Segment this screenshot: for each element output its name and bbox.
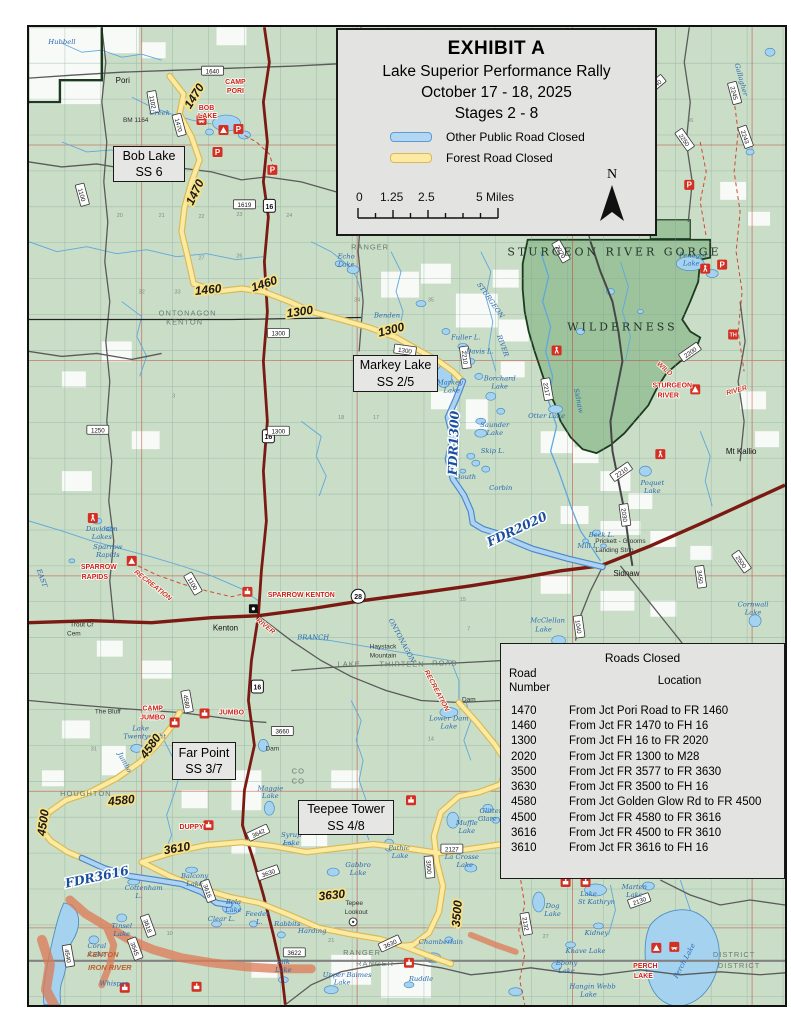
water-label: Echo — [337, 253, 355, 261]
road-location: From Jct FR 1300 to M28 — [569, 750, 784, 765]
private-land — [62, 82, 92, 104]
private-land — [62, 371, 86, 387]
private-land — [62, 471, 92, 491]
section-number: 7 — [467, 627, 470, 633]
svg-text:1300: 1300 — [271, 331, 285, 338]
water-label: Lake — [744, 609, 762, 617]
road-marker-3660: 3660 — [271, 726, 293, 735]
admin-label: RANGER — [351, 243, 389, 252]
campground-icon — [651, 943, 661, 953]
water-label: Pathic — [387, 844, 410, 852]
admin-label: CO — [292, 776, 305, 785]
highway-shield-28: 28 — [351, 589, 365, 603]
wilderness-label: WILDERNESS — [567, 320, 677, 333]
lake — [264, 801, 274, 815]
column-header-location: Location — [575, 667, 784, 696]
water-label: Lake — [579, 890, 597, 898]
private-land — [740, 391, 766, 409]
lake — [639, 466, 651, 476]
road-location: From Jct FR 3577 to FR 3630 — [569, 765, 784, 780]
water-label: Lake — [534, 626, 552, 634]
mill-icon — [404, 958, 414, 968]
road-location: From Jct FH 16 to FR 2020 — [569, 734, 784, 749]
recreation-site-label: JUMBO — [140, 714, 166, 721]
private-land — [628, 493, 652, 509]
road-number: 3630 — [501, 780, 569, 795]
road-closed-row: 3500From Jct FR 3577 to FR 3630 — [501, 765, 784, 780]
svg-text:16: 16 — [254, 685, 262, 692]
water-label: Maggie — [256, 784, 283, 792]
water-label: Fuller L. — [450, 333, 480, 341]
north-arrow: N — [597, 167, 627, 228]
road-location: From Jct Golden Glow Rd to FR 4500 — [569, 795, 784, 810]
highway-shield-16: 16 — [251, 680, 263, 693]
private-land — [755, 431, 779, 447]
recreation-site-label: CAMP — [225, 79, 246, 86]
section-number: 35 — [428, 298, 434, 304]
lake — [416, 301, 426, 307]
legend-item-forest-road: Forest Road Closed — [390, 151, 655, 165]
place-label: Trout Cr — [70, 622, 94, 629]
place-label: Lookout — [345, 909, 368, 916]
water-label: Dog — [545, 902, 560, 910]
water-label: Ruddle — [408, 975, 433, 983]
lake — [442, 328, 450, 334]
section-number: 33 — [175, 290, 181, 296]
water-label: Lake — [625, 891, 643, 899]
water-label: Coral — [87, 942, 106, 950]
road-marker-1640: 1640 — [202, 66, 224, 75]
trailhead-icon: TH — [728, 329, 738, 339]
water-label: Upper Baimes — [323, 971, 372, 979]
lake — [533, 892, 545, 912]
private-land — [331, 770, 359, 788]
mill-icon — [242, 587, 252, 597]
water-label: Whisper — [100, 980, 129, 988]
water-label: Kidney — [584, 929, 609, 937]
lake — [765, 48, 775, 56]
recreation-site-label: PORI — [227, 88, 244, 95]
stage-ss: SS 4/8 — [299, 818, 393, 834]
svg-text:3660: 3660 — [275, 729, 289, 736]
map-title-box: EXHIBIT A Lake Superior Performance Rall… — [336, 28, 657, 236]
water-label: Rabbits — [273, 920, 301, 928]
place-label: Tepee — [345, 900, 363, 907]
section-number: 36 — [687, 118, 693, 124]
route-number-label: 3500 — [449, 899, 465, 927]
place-label: Landing Strip — [595, 547, 634, 554]
north-label: N — [597, 167, 627, 183]
stage-ss: SS 6 — [114, 164, 184, 180]
hiker-icon — [700, 264, 710, 274]
svg-text:5 Miles: 5 Miles — [476, 190, 514, 204]
road-number: 3500 — [501, 765, 569, 780]
road-marker-3500: 3500 — [424, 856, 435, 879]
lake — [482, 466, 490, 472]
lake — [472, 460, 480, 466]
recreation-site-label: SPARROW KENTON — [268, 592, 335, 599]
section-number: 31 — [91, 746, 97, 752]
private-land — [541, 576, 571, 594]
svg-text:P: P — [270, 166, 276, 175]
svg-text:TH: TH — [729, 333, 736, 339]
parking-icon: P — [267, 165, 277, 175]
recreation-site-label: DUPPY — [180, 824, 204, 831]
water-label: Lake — [557, 967, 575, 975]
private-land — [142, 42, 166, 58]
mill-icon — [204, 820, 214, 830]
svg-text:1250: 1250 — [91, 427, 105, 434]
water-label: La Crosse — [444, 853, 479, 861]
private-land — [42, 770, 64, 786]
private-land — [182, 790, 208, 808]
water-label: Tinsel — [111, 922, 132, 930]
mill-icon — [170, 717, 180, 727]
road-number: 2020 — [501, 750, 569, 765]
town-label: Kenton — [213, 624, 238, 633]
mill-icon — [200, 708, 210, 718]
lake — [69, 559, 75, 563]
section-number: 10 — [167, 931, 173, 937]
recreation-site-label: JUMBO — [219, 709, 245, 716]
road-location: From Jct FR 3616 to FH 16 — [569, 841, 784, 856]
road-location: From Jct FR 3500 to FH 16 — [569, 780, 784, 795]
svg-text:1640: 1640 — [206, 68, 220, 75]
water-label: Harding — [297, 927, 327, 935]
private-land — [421, 264, 451, 284]
admin-label: DISTRICT — [713, 950, 755, 959]
road-marker-1300: 1300 — [267, 328, 289, 337]
water-label: Hubbell — [47, 38, 75, 46]
section-number: 21 — [328, 938, 334, 944]
place-label: Mountain — [370, 653, 397, 660]
campground-icon — [218, 125, 228, 135]
water-label: Muffle — [455, 819, 478, 827]
road-closed-row: 1470From Jct Pori Road to FR 1460 — [501, 704, 784, 719]
private-land — [62, 720, 90, 738]
stage-label-teepee-tower: Teepee Tower SS 4/8 — [298, 800, 394, 835]
lake — [475, 429, 487, 437]
town-label: Pori — [116, 76, 130, 85]
mill-icon — [406, 795, 416, 805]
lake — [206, 129, 214, 135]
water-label: Lake — [185, 880, 203, 888]
lake — [509, 988, 523, 996]
water-label: Lake — [131, 724, 149, 732]
svg-text:2.5: 2.5 — [418, 190, 435, 204]
water-label: Silk — [277, 958, 290, 966]
section-number: 14 — [428, 736, 434, 742]
campground-icon — [127, 556, 137, 566]
road-number: 3616 — [501, 826, 569, 841]
section-number: 15 — [460, 597, 466, 603]
town-label: Sidnaw — [613, 569, 639, 578]
lake — [486, 392, 496, 400]
water-label: Lake — [224, 906, 242, 914]
svg-text:3500: 3500 — [424, 860, 432, 875]
place-label: Dam — [462, 697, 476, 704]
place-label: Cem — [67, 631, 81, 638]
recreation-site-label: RAPIDS — [82, 574, 109, 581]
roads-table-title: Roads Closed — [501, 651, 784, 665]
roads-table-header: Road Number Location — [501, 667, 784, 696]
hiker-icon — [655, 449, 665, 459]
route-number-label: 4580 — [106, 792, 135, 809]
water-label: Borchard — [483, 374, 517, 382]
water-label: Otter Lake — [528, 412, 565, 420]
private-land — [132, 431, 160, 449]
water-label: Lake — [443, 386, 461, 394]
road-closed-row: 4500From Jct FR 4580 to FR 3616 — [501, 811, 784, 826]
water-label: Davis L. — [465, 347, 494, 355]
hiker-icon — [88, 513, 98, 523]
svg-text:1619: 1619 — [238, 202, 252, 209]
water-label: Sparrow — [93, 543, 123, 551]
road-location: From Jct Pori Road to FR 1460 — [569, 704, 784, 719]
parking-icon: P — [233, 124, 243, 134]
road-closed-row: 4580From Jct Golden Glow Rd to FR 4500 — [501, 795, 784, 810]
water-label: Lake — [333, 979, 351, 987]
road-marker-1619: 1619 — [233, 200, 255, 209]
admin-label: HOUGHTON — [60, 789, 111, 798]
admin-label: KENTON — [166, 318, 203, 327]
road-marker-1300: 1300 — [267, 426, 289, 435]
recreation-site-label: LAKE — [198, 113, 217, 120]
private-land — [690, 546, 712, 560]
water-label: Lake — [456, 861, 474, 869]
admin-label: RANGER — [343, 948, 381, 957]
water-label: Lake — [391, 852, 409, 860]
place-label: Dam — [266, 745, 280, 752]
section-number: 32 — [139, 290, 145, 296]
road-closed-row: 2020From Jct FR 1300 to M28 — [501, 750, 784, 765]
mill-icon — [192, 982, 202, 992]
water-label: Cottenham — [125, 884, 163, 892]
road-closed-row: 1300From Jct FH 16 to FR 2020 — [501, 734, 784, 749]
section-number: 34 — [354, 298, 360, 304]
recreation-site-label: LAKE — [634, 973, 653, 980]
water-label: Gabbro — [345, 861, 370, 869]
stage-ss: SS 2/5 — [354, 374, 437, 390]
parking-icon: P — [717, 260, 727, 270]
water-label: Corbin — [489, 484, 512, 492]
water-label: Lake — [337, 261, 355, 269]
highway-shield-16: 16 — [263, 199, 275, 212]
svg-text:0: 0 — [356, 190, 363, 204]
public-road-swatch — [390, 132, 432, 142]
svg-text:P: P — [687, 181, 693, 190]
recreation-site-label: BOB — [199, 105, 215, 112]
district-label: KENTON — [87, 950, 119, 959]
admin-label: ROAD — [432, 659, 458, 668]
lake — [475, 373, 483, 379]
road-closed-row: 3616From Jct FR 4500 to FR 3610 — [501, 826, 784, 841]
stage-label-far-point: Far Point SS 3/7 — [172, 742, 236, 780]
water-label: Lake — [543, 910, 561, 918]
water-label: Lake — [282, 839, 300, 847]
water-label: McClellan — [529, 617, 565, 625]
water-label: Lake — [349, 869, 367, 877]
private-land — [600, 591, 634, 611]
water-label: St Kathryn — [578, 898, 615, 906]
water-label: Benden — [373, 312, 400, 320]
admin-label: DISTRICT — [718, 961, 760, 970]
water-label: Skip L. — [481, 447, 505, 455]
admin-label: RANGER — [356, 959, 394, 968]
place-label: Prickett - Grooms — [595, 538, 645, 545]
stage-name: Teepee Tower — [299, 801, 393, 817]
water-label: Lower Dam — [428, 714, 469, 722]
private-land — [720, 182, 746, 200]
road-number: 4580 — [501, 795, 569, 810]
roads-closed-table: Roads Closed Road Number Location 1470Fr… — [500, 643, 785, 879]
water-label: Cornwall — [738, 601, 769, 609]
section-number: 26 — [236, 254, 242, 260]
svg-text:1.25: 1.25 — [380, 190, 404, 204]
svg-text:16: 16 — [265, 204, 273, 211]
svg-text:28: 28 — [354, 594, 362, 601]
exhibit-title: EXHIBIT A — [338, 38, 655, 60]
stage-label-bob-lake: Bob Lake SS 6 — [113, 146, 185, 182]
recreation-site-label: STURGEON — [653, 382, 693, 389]
lookout-icon — [349, 918, 357, 926]
lake — [327, 868, 339, 876]
district-label: IRON RIVER — [88, 963, 132, 972]
private-land — [142, 661, 172, 679]
admin-label: THIRTEEN — [379, 660, 424, 669]
water-label: Lake — [458, 827, 476, 835]
recreation-site-label: PERCH — [633, 963, 657, 970]
water-label: Hangin Webb — [568, 983, 615, 991]
section-number: 24 — [286, 213, 292, 219]
town-icon — [249, 604, 258, 613]
section-number: 3 — [172, 393, 175, 399]
water-label: Lake — [440, 722, 458, 730]
lake — [637, 310, 643, 314]
lake — [497, 408, 505, 414]
stage-name: Far Point — [173, 745, 235, 761]
place-label: Haystack — [370, 644, 397, 651]
water-label: L. — [255, 918, 263, 926]
svg-text:1300: 1300 — [271, 428, 285, 435]
water-label: Lake — [643, 487, 661, 495]
road-marker-1250: 1250 — [87, 425, 109, 434]
water-label: Lake — [682, 260, 700, 268]
water-label: Feeder — [244, 910, 270, 918]
section-number: 17 — [373, 415, 379, 421]
section-number: 27 — [543, 934, 549, 940]
private-land — [217, 27, 247, 45]
column-header-road-number: Road Number — [501, 667, 575, 696]
route-number-label: 3630 — [318, 887, 346, 904]
parking-icon: P — [684, 180, 694, 190]
water-label: L. — [134, 892, 142, 900]
lake — [467, 453, 475, 459]
road-number: 1300 — [501, 734, 569, 749]
svg-text:P: P — [236, 125, 242, 134]
water-label: Creek — [149, 109, 170, 117]
stage-label-markey-lake: Markey Lake SS 2/5 — [353, 355, 438, 392]
recreation-site-label: SPARROW — [81, 564, 117, 571]
water-label: Balcony — [180, 872, 208, 880]
water-label: Lakes — [91, 533, 113, 541]
water-label: Lake — [579, 991, 597, 999]
water-label: Bela — [225, 898, 241, 906]
water-label: BRANCH — [296, 634, 330, 642]
route-number-label: 1460 — [194, 281, 222, 298]
admin-label: LAKE — [338, 660, 361, 669]
water-label: Davidson — [85, 525, 118, 533]
private-land — [748, 212, 770, 226]
road-marker-3622: 3622 — [283, 948, 305, 957]
water-label: Poquet — [639, 479, 664, 487]
lake — [324, 986, 338, 994]
recreation-site-label: RIVER — [658, 392, 679, 399]
water-label: Clear L. — [208, 915, 235, 923]
admin-label: ONTONAGON — [159, 309, 217, 318]
water-label: Markey — [436, 378, 463, 386]
road-closed-row: 3610From Jct FR 3616 to FH 16 — [501, 841, 784, 856]
section-number: 23 — [236, 212, 242, 218]
lake — [117, 914, 127, 922]
road-location: From Jct FR 4500 to FR 3610 — [569, 826, 784, 841]
water-label: Lake — [112, 930, 130, 938]
recreation-site-label: CAMP — [142, 705, 163, 712]
water-label: Marten — [621, 883, 647, 891]
water-label: Ebony — [555, 959, 578, 967]
public-road-label: FDR1300 — [445, 410, 462, 476]
road-number: 4500 — [501, 811, 569, 826]
section-number: 18 — [338, 415, 344, 421]
hiker-icon — [552, 345, 562, 355]
road-marker-2127: 2127 — [441, 844, 463, 853]
section-number: 21 — [159, 213, 165, 219]
admin-label: CO — [292, 766, 305, 775]
road-closed-row: 1460From Jct FR 1470 to FH 16 — [501, 719, 784, 734]
event-title: Lake Superior Performance Rally — [338, 63, 655, 81]
road-closed-row: 3630From Jct FR 3500 to FH 16 — [501, 780, 784, 795]
water-label: Saunder — [480, 421, 510, 429]
svg-text:3622: 3622 — [287, 950, 301, 957]
road-number: 1470 — [501, 704, 569, 719]
svg-text:P: P — [720, 260, 726, 269]
lake — [277, 932, 285, 938]
stage-ss: SS 3/7 — [173, 761, 235, 777]
water-label: Lake — [490, 382, 508, 390]
water-label: Lake — [485, 429, 503, 437]
road-location: From Jct FR 1470 to FH 16 — [569, 719, 784, 734]
stage-name: Bob Lake — [114, 148, 184, 164]
road-location: From Jct FR 4580 to FR 3616 — [569, 811, 784, 826]
event-stages: Stages 2 - 8 — [338, 105, 655, 123]
wilderness-label: STURGEON RIVER GORGE — [507, 246, 721, 259]
svg-text:P: P — [215, 148, 221, 157]
section-number: 27 — [198, 256, 204, 262]
scale-bar: 0 1.25 2.5 5 Miles — [348, 189, 518, 230]
forest-road-swatch — [390, 153, 432, 163]
place-label: BM 1164 — [123, 117, 149, 124]
section-number: 22 — [198, 214, 204, 220]
water-label: Lake — [274, 966, 292, 974]
water-label: Rapids — [95, 551, 120, 559]
road-number: 1460 — [501, 719, 569, 734]
place-label: The Bluff — [95, 708, 121, 715]
legend-label: Forest Road Closed — [446, 151, 553, 165]
lake — [746, 149, 754, 155]
legend-label: Other Public Road Closed — [446, 130, 585, 144]
town-label: Mt Kallio — [726, 447, 757, 456]
water-label: Lake — [261, 792, 279, 800]
